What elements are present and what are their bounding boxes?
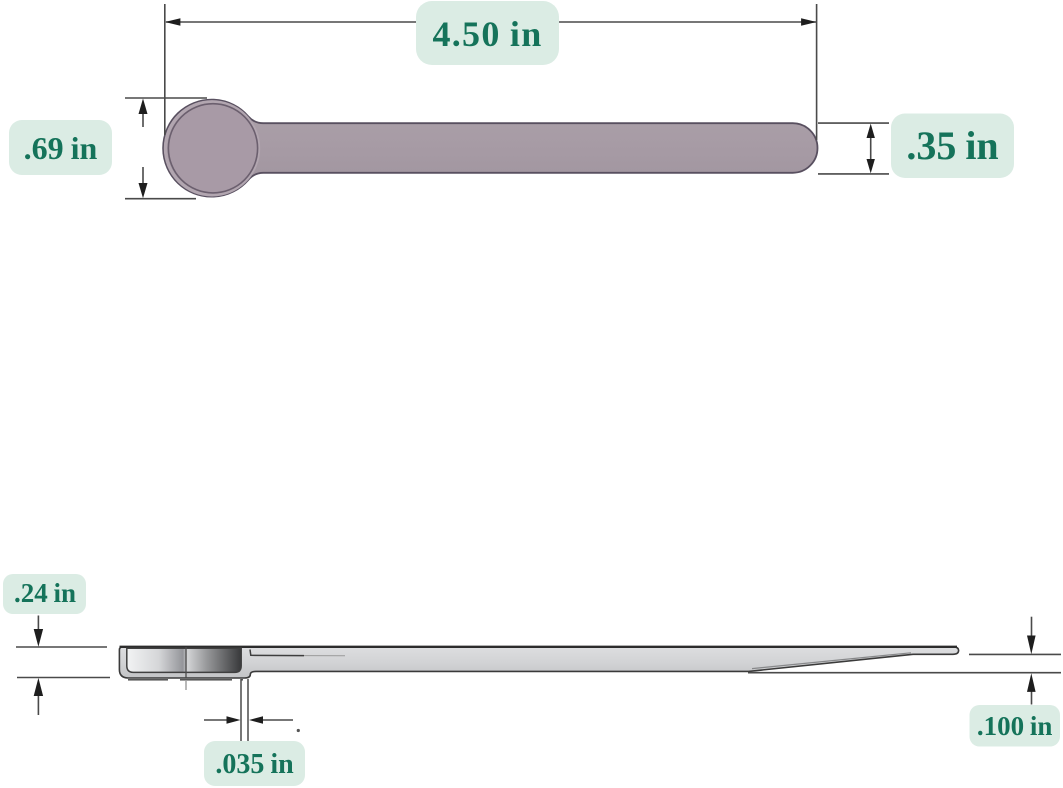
svg-text:4.50 in: 4.50 in bbox=[432, 14, 542, 54]
svg-text:.100 in: .100 in bbox=[977, 711, 1053, 741]
svg-text:.35 in: .35 in bbox=[906, 123, 998, 168]
svg-text:.69 in: .69 in bbox=[24, 130, 98, 166]
svg-text:.035 in: .035 in bbox=[215, 749, 294, 780]
svg-text:.24 in: .24 in bbox=[14, 578, 76, 608]
